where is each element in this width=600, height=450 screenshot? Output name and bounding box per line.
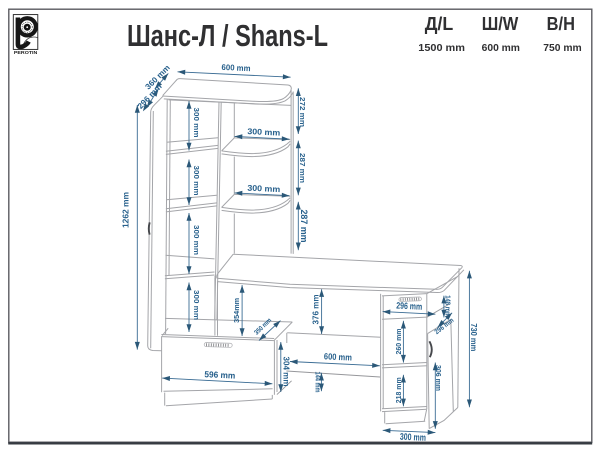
- svg-text:300 mm: 300 mm: [192, 108, 201, 138]
- svg-text:1500 mm: 1500 mm: [418, 42, 465, 54]
- svg-text:306 mm: 306 mm: [434, 365, 443, 391]
- svg-text:Ш/W: Ш/W: [482, 13, 519, 34]
- svg-text:354mm: 354mm: [232, 297, 241, 322]
- svg-text:596 mm: 596 mm: [204, 369, 236, 381]
- svg-text:287 mm: 287 mm: [298, 153, 307, 183]
- svg-text:144 mm: 144 mm: [313, 372, 320, 393]
- svg-text:300 mm: 300 mm: [192, 225, 201, 255]
- svg-text:300 mm: 300 mm: [400, 432, 426, 444]
- svg-text:287 mm: 287 mm: [299, 210, 309, 243]
- svg-text:304 mm: 304 mm: [281, 357, 290, 387]
- svg-text:300 mm: 300 mm: [247, 126, 280, 138]
- svg-text:300 mm: 300 mm: [247, 183, 280, 195]
- svg-text:750 mm: 750 mm: [543, 42, 581, 54]
- svg-text:730 mm: 730 mm: [469, 323, 478, 351]
- svg-text:376 mm: 376 mm: [311, 295, 320, 325]
- svg-text:600 mm: 600 mm: [482, 42, 520, 54]
- svg-text:Шанс-Л / Shans-L: Шанс-Л / Shans-L: [127, 20, 328, 53]
- svg-text:В/H: В/H: [547, 13, 575, 34]
- svg-text:300 mm: 300 mm: [192, 166, 201, 196]
- svg-text:300 mm: 300 mm: [192, 290, 201, 320]
- svg-text:600 mm: 600 mm: [221, 62, 250, 73]
- svg-text:272 mm: 272 mm: [298, 97, 307, 127]
- svg-text:Д/L: Д/L: [425, 13, 454, 34]
- svg-text:260 mm: 260 mm: [394, 328, 403, 354]
- svg-text:218 mm: 218 mm: [394, 377, 403, 403]
- svg-text:148 mm: 148 mm: [444, 295, 451, 317]
- svg-text:1262 mm: 1262 mm: [122, 192, 131, 228]
- svg-text:PEROTIN: PEROTIN: [14, 50, 38, 56]
- svg-text:600 mm: 600 mm: [324, 351, 352, 362]
- svg-text:296 mm: 296 mm: [396, 301, 422, 312]
